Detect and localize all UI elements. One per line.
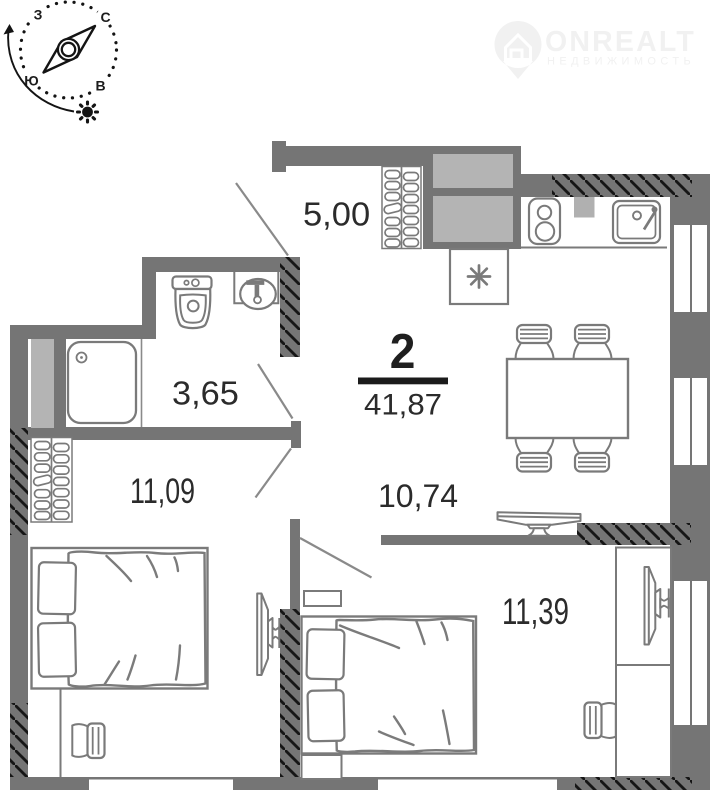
- svg-text:2: 2: [390, 325, 416, 380]
- svg-text:ONREALT: ONREALT: [545, 26, 696, 58]
- svg-text:3,65: 3,65: [172, 376, 239, 412]
- svg-text:10,74: 10,74: [378, 478, 458, 514]
- svg-text:В: В: [95, 78, 105, 94]
- svg-text:З: З: [34, 7, 43, 23]
- svg-text:С: С: [100, 9, 110, 25]
- svg-text:НЕДВИЖИМОСТЬ: НЕДВИЖИМОСТЬ: [547, 56, 695, 68]
- svg-text:41,87: 41,87: [364, 388, 442, 421]
- svg-text:5,00: 5,00: [303, 196, 370, 233]
- svg-text:11,39: 11,39: [502, 590, 569, 632]
- svg-text:11,09: 11,09: [130, 472, 195, 511]
